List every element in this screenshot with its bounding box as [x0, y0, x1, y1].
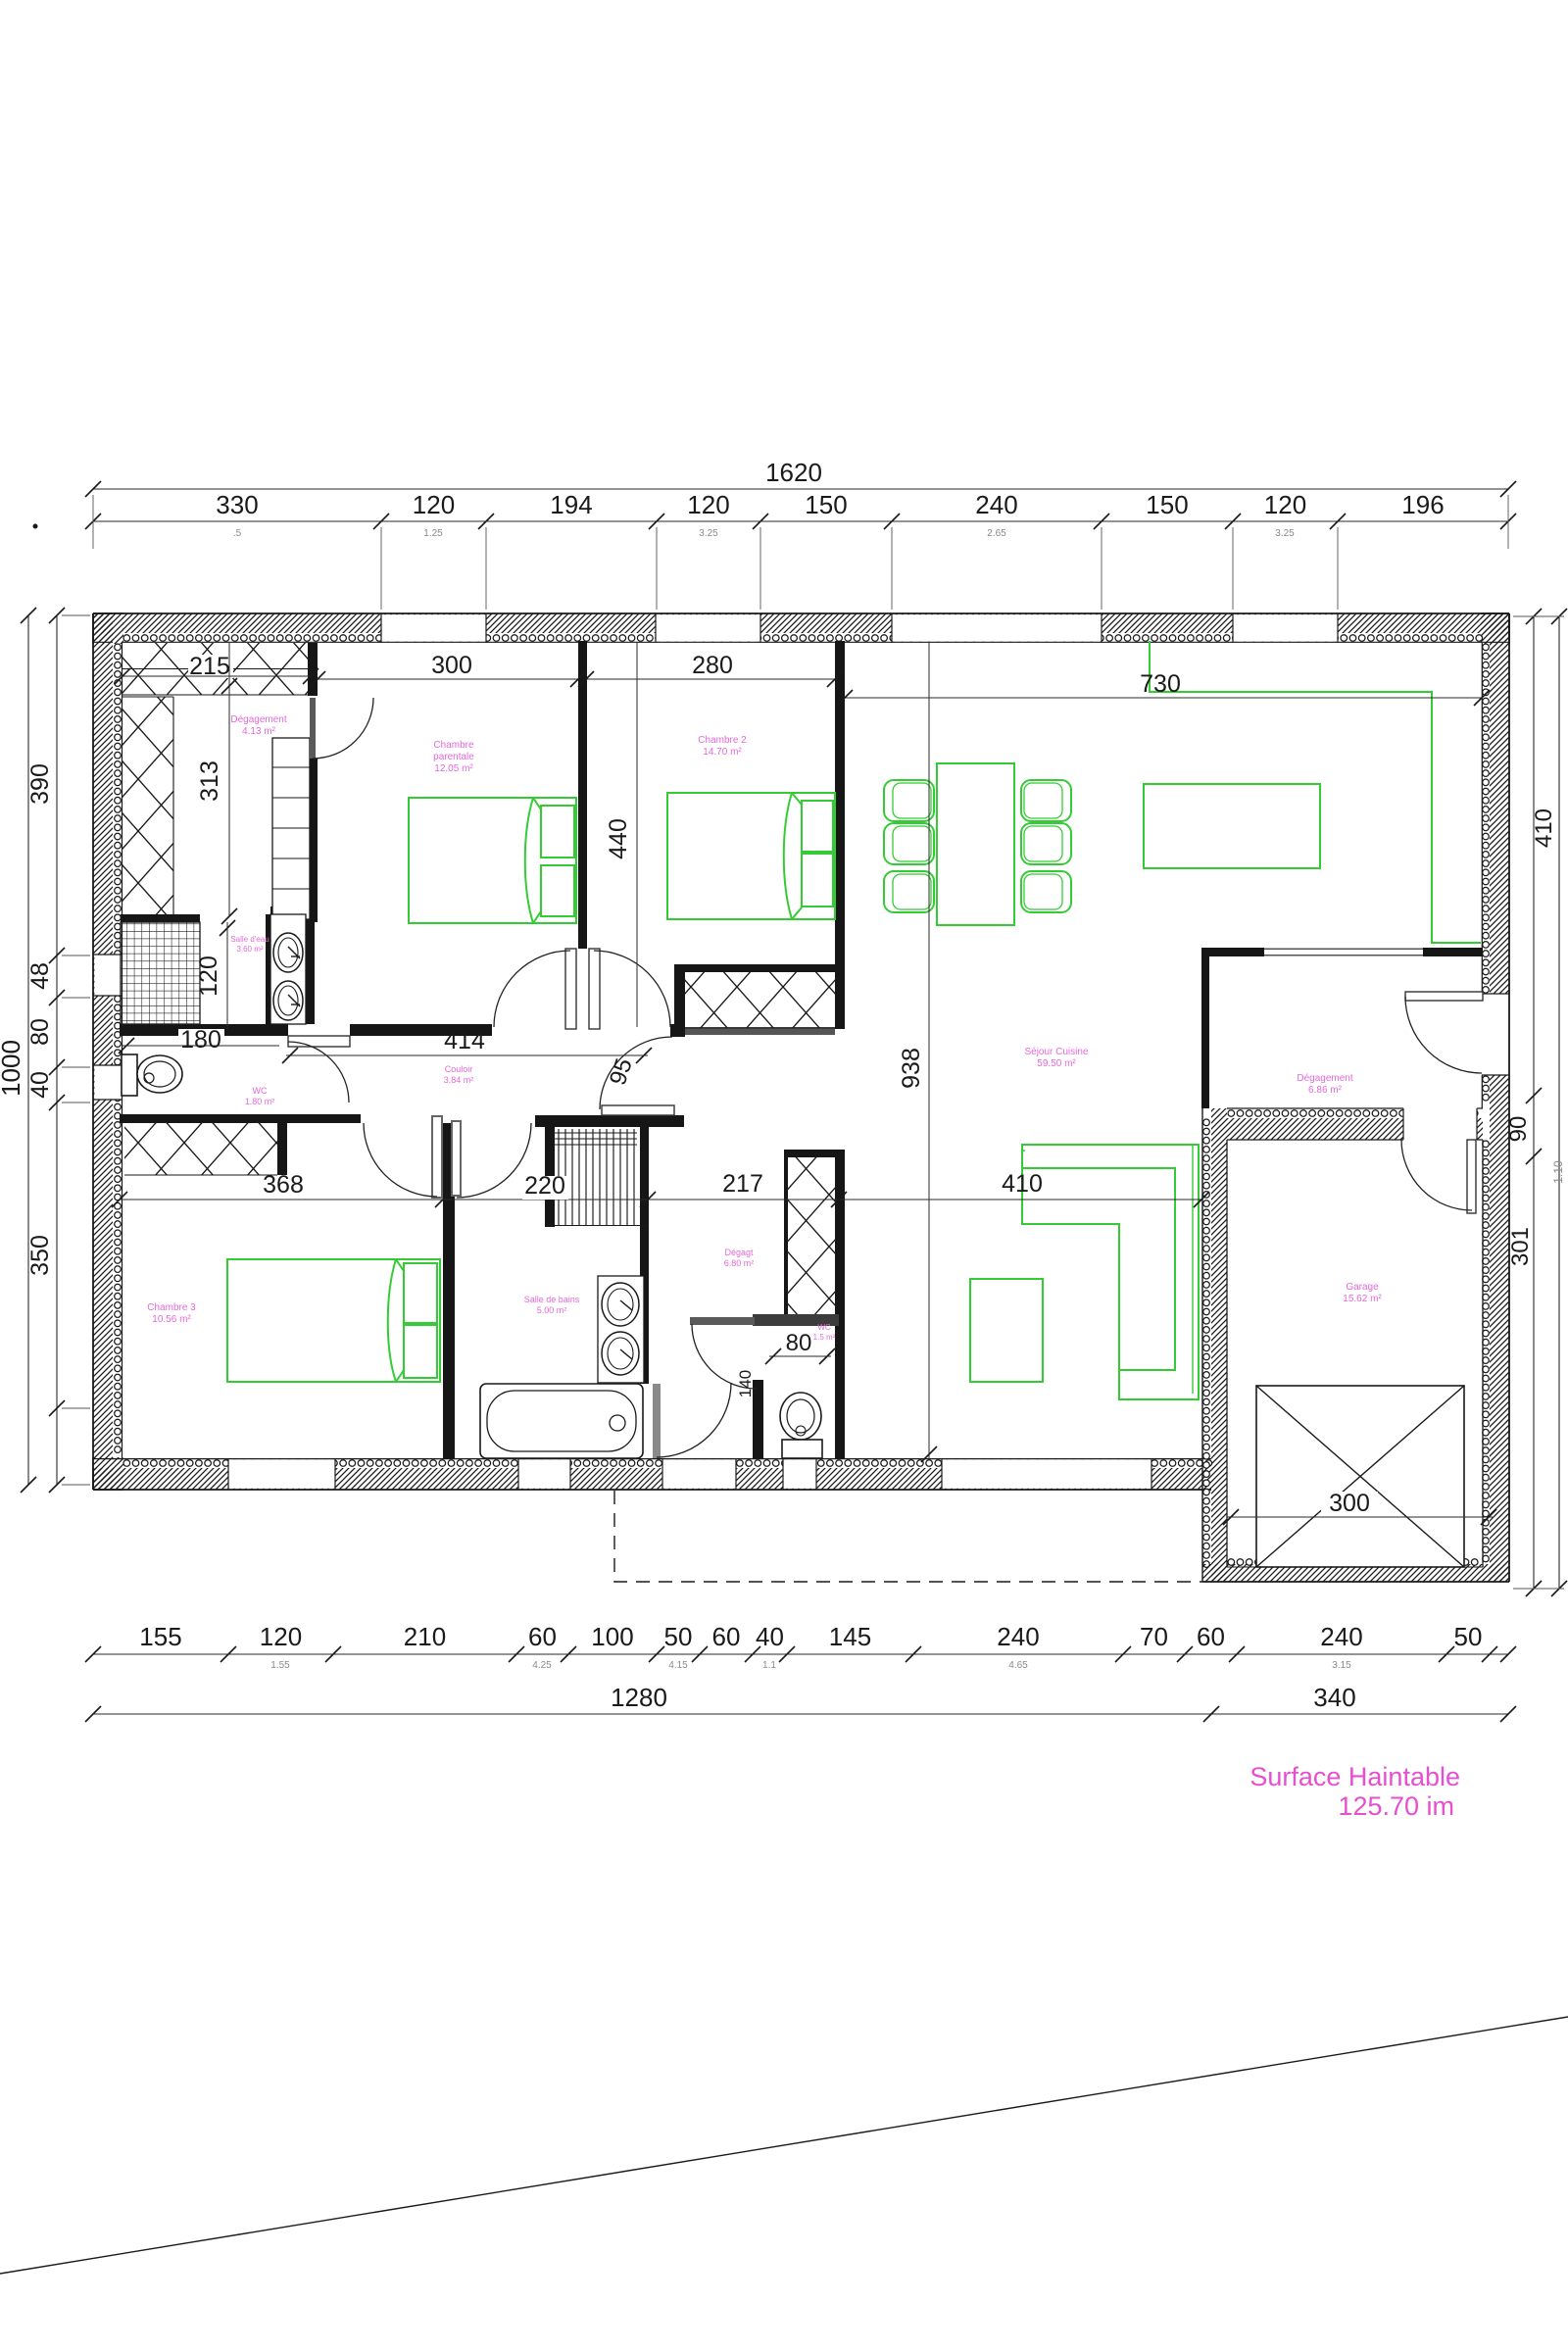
svg-text:50: 50: [1454, 1622, 1483, 1651]
svg-text:240: 240: [997, 1622, 1039, 1651]
svg-text:390: 390: [26, 763, 54, 805]
svg-text:180: 180: [180, 1026, 221, 1053]
svg-text:90: 90: [1505, 1116, 1532, 1143]
svg-text:3.84 m²: 3.84 m²: [444, 1075, 474, 1085]
svg-text:2.65: 2.65: [987, 528, 1006, 539]
svg-text:1.1: 1.1: [762, 1660, 776, 1671]
svg-text:240: 240: [1320, 1622, 1362, 1651]
svg-text:301: 301: [1507, 1227, 1534, 1266]
svg-text:313: 313: [196, 760, 223, 802]
svg-text:Dégagt: Dégagt: [724, 1248, 754, 1257]
svg-text:80: 80: [26, 1018, 54, 1046]
svg-text:120: 120: [1264, 490, 1306, 519]
svg-text:Chambre: Chambre: [433, 740, 474, 751]
svg-text:4.65: 4.65: [1008, 1660, 1028, 1671]
svg-text:Salle d'eau: Salle d'eau: [230, 935, 269, 944]
svg-text:196: 196: [1401, 490, 1444, 519]
svg-text:125.70 im: 125.70 im: [1338, 1791, 1454, 1821]
svg-text:Chambre 3: Chambre 3: [147, 1302, 196, 1313]
svg-text:368: 368: [263, 1171, 304, 1199]
svg-text:14.70 m²: 14.70 m²: [703, 747, 742, 758]
svg-text:3.60 m²: 3.60 m²: [236, 945, 263, 954]
svg-text:1.55: 1.55: [270, 1660, 290, 1671]
svg-text:40: 40: [756, 1622, 784, 1651]
svg-text:3.15: 3.15: [1332, 1660, 1351, 1671]
svg-text:330: 330: [216, 490, 258, 519]
svg-text:6.80 m²: 6.80 m²: [724, 1258, 755, 1268]
svg-text:WC: WC: [817, 1323, 831, 1332]
svg-text:80: 80: [786, 1330, 812, 1356]
svg-text:48: 48: [26, 962, 54, 990]
svg-text:150: 150: [805, 490, 847, 519]
svg-text:410: 410: [1531, 808, 1557, 848]
svg-text:938: 938: [898, 1048, 925, 1089]
svg-text:280: 280: [692, 652, 733, 679]
svg-text:1.10: 1.10: [1551, 1160, 1565, 1184]
svg-text:59.50 m²: 59.50 m²: [1037, 1058, 1076, 1069]
svg-text:300: 300: [431, 652, 472, 679]
svg-text:350: 350: [26, 1235, 54, 1276]
svg-text:150: 150: [1146, 490, 1188, 519]
svg-text:1280: 1280: [611, 1683, 667, 1712]
svg-text:Séjour Cuisine: Séjour Cuisine: [1024, 1047, 1088, 1057]
svg-text:3.25: 3.25: [1275, 528, 1295, 539]
svg-text:217: 217: [722, 1170, 763, 1198]
svg-text:50: 50: [664, 1622, 693, 1651]
svg-text:3.25: 3.25: [699, 528, 718, 539]
svg-text:155: 155: [139, 1622, 181, 1651]
svg-text:140: 140: [736, 1370, 755, 1397]
svg-text:120: 120: [195, 955, 222, 997]
svg-text:1.80 m²: 1.80 m²: [245, 1097, 275, 1106]
svg-text:40: 40: [26, 1071, 54, 1099]
svg-text:1620: 1620: [765, 458, 822, 487]
svg-text:440: 440: [605, 818, 632, 859]
svg-text:730: 730: [1140, 670, 1181, 698]
svg-text:1000: 1000: [0, 1040, 25, 1097]
svg-text:340: 340: [1313, 1683, 1355, 1712]
svg-text:6.86 m²: 6.86 m²: [1308, 1085, 1343, 1096]
svg-text:100: 100: [591, 1622, 633, 1651]
svg-text:parentale: parentale: [433, 752, 474, 762]
svg-text:60: 60: [1197, 1622, 1225, 1651]
svg-text:194: 194: [550, 490, 592, 519]
svg-text:414: 414: [444, 1027, 485, 1054]
svg-text:120: 120: [260, 1622, 302, 1651]
svg-text:240: 240: [975, 490, 1017, 519]
svg-text:4.25: 4.25: [532, 1660, 552, 1671]
svg-text:120: 120: [413, 490, 455, 519]
svg-text:70: 70: [1140, 1622, 1168, 1651]
svg-text:4.13 m²: 4.13 m²: [242, 726, 276, 737]
svg-text:12.05 m²: 12.05 m²: [434, 763, 473, 774]
svg-text:300: 300: [1329, 1490, 1370, 1517]
svg-text:215: 215: [189, 653, 230, 680]
svg-text:1.25: 1.25: [423, 528, 443, 539]
svg-text:Chambre 2: Chambre 2: [698, 735, 747, 746]
svg-text:220: 220: [524, 1172, 565, 1200]
svg-text:120: 120: [687, 490, 729, 519]
svg-text:Dégagement: Dégagement: [1297, 1073, 1352, 1084]
svg-text:60: 60: [712, 1622, 741, 1651]
svg-text:Couloir: Couloir: [445, 1064, 473, 1074]
svg-text:60: 60: [528, 1622, 557, 1651]
svg-text:Dégagement: Dégagement: [230, 714, 286, 725]
svg-text:15.62 m²: 15.62 m²: [1343, 1294, 1382, 1304]
svg-text:5.00 m²: 5.00 m²: [537, 1305, 567, 1315]
svg-text:1.5 m²: 1.5 m²: [813, 1333, 836, 1342]
svg-text:210: 210: [404, 1622, 446, 1651]
svg-text:Surface Haintable: Surface Haintable: [1249, 1762, 1460, 1791]
svg-text:10.56 m²: 10.56 m²: [152, 1314, 191, 1325]
svg-text:4.15: 4.15: [668, 1660, 688, 1671]
svg-text:Garage: Garage: [1346, 1282, 1379, 1293]
svg-text:Salle de bains: Salle de bains: [524, 1295, 580, 1304]
svg-text:410: 410: [1002, 1170, 1043, 1198]
svg-text:145: 145: [829, 1622, 871, 1651]
svg-text:WC: WC: [253, 1086, 268, 1096]
svg-text:.5: .5: [233, 528, 242, 539]
